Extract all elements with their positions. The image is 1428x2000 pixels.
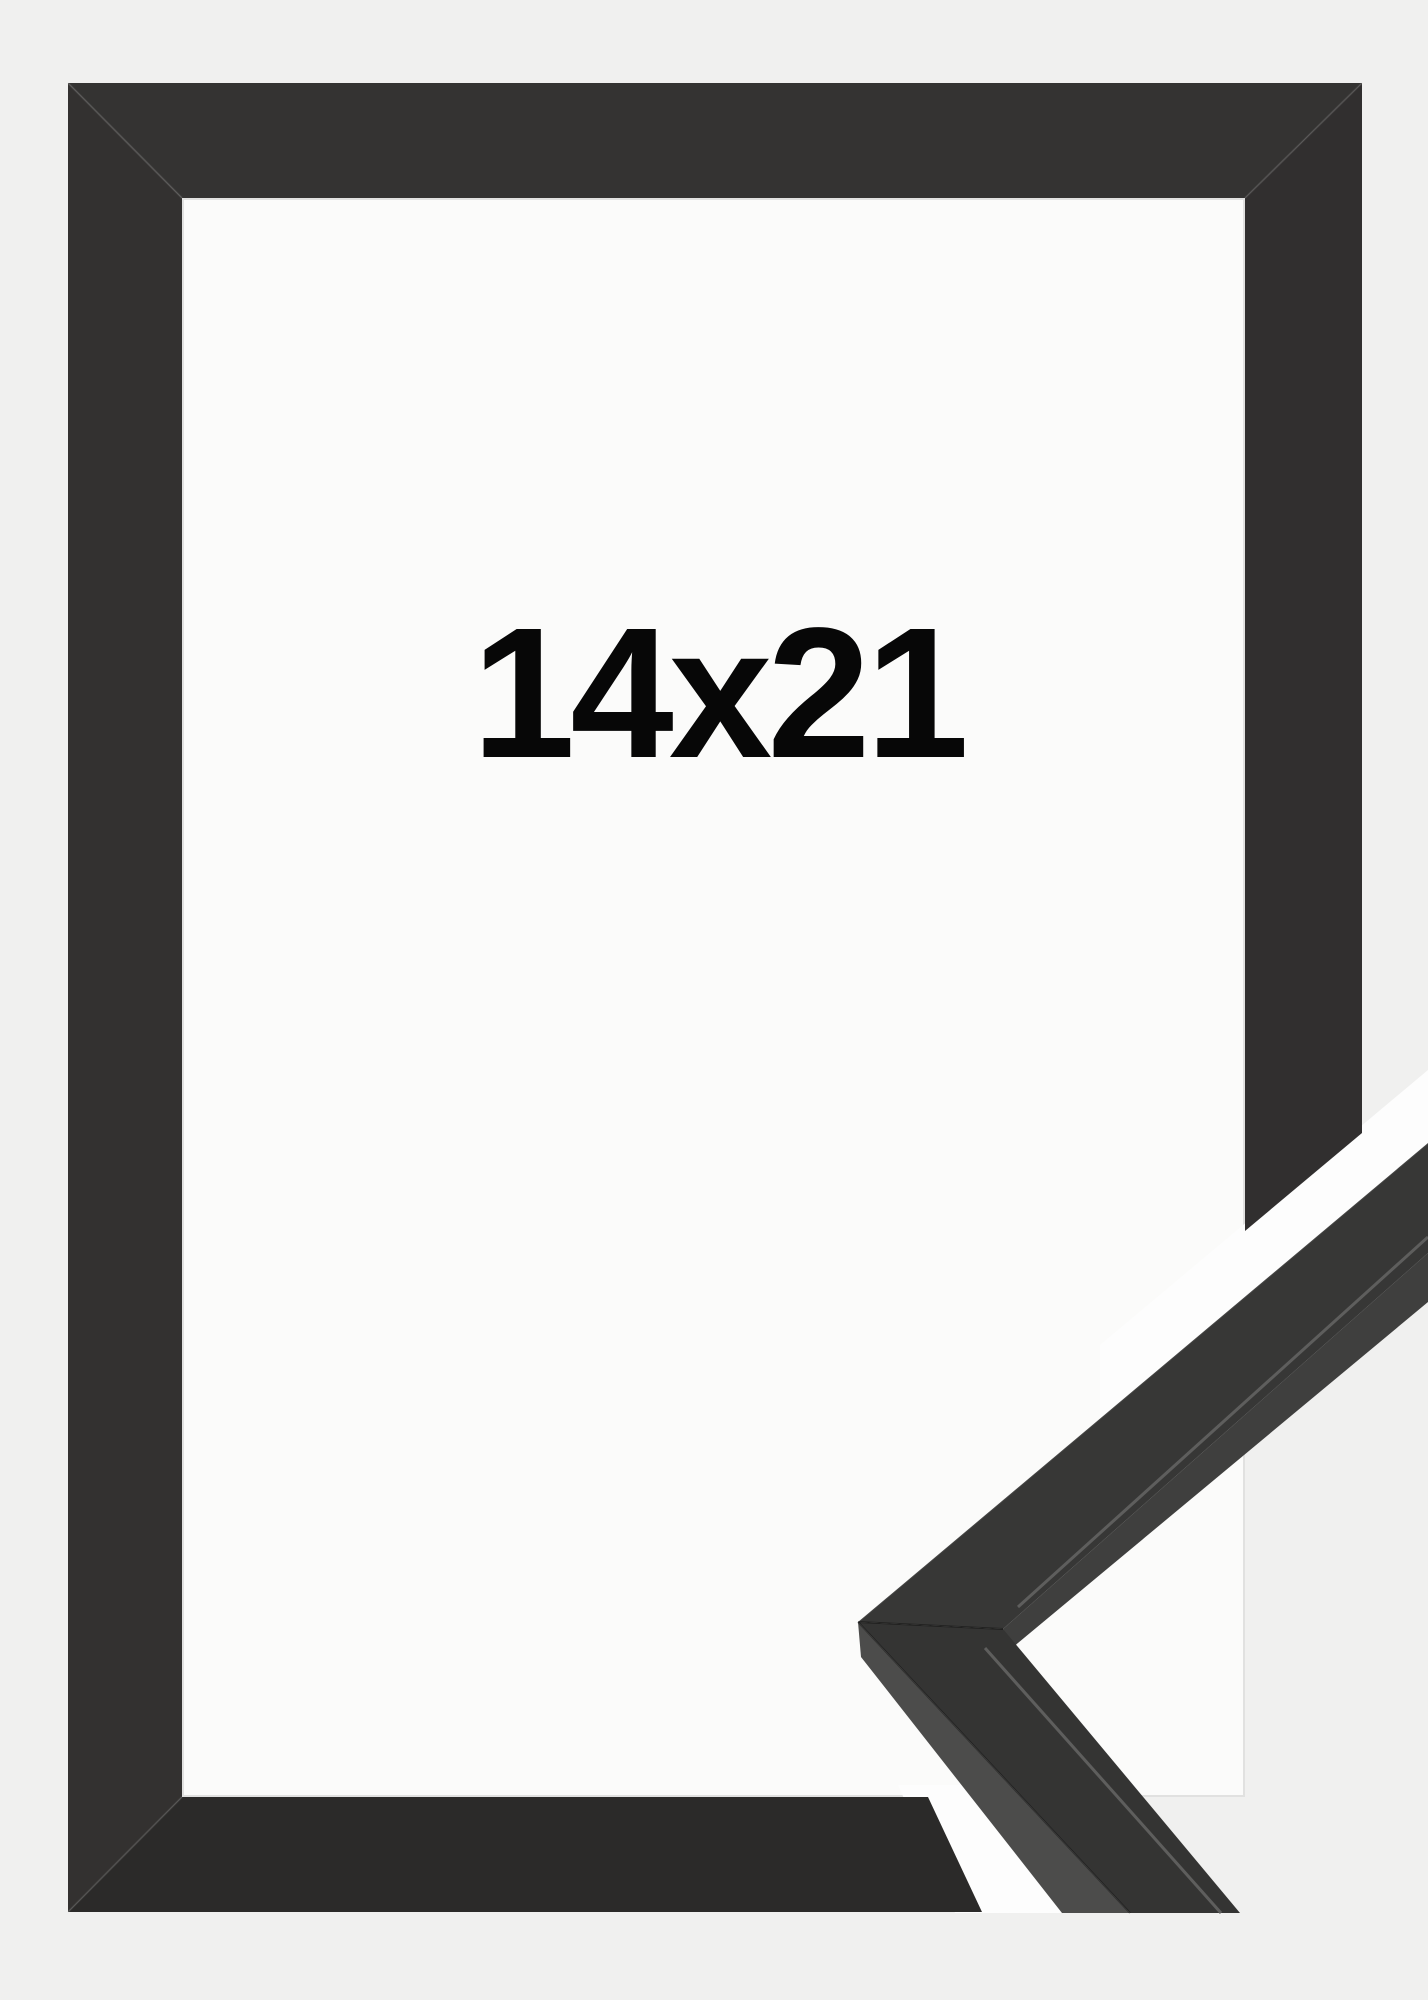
size-label: 14x21	[472, 601, 964, 787]
frame-product-canvas	[0, 0, 1428, 2000]
frame-top-band	[68, 83, 1362, 198]
frame-product-image: 14x21	[0, 0, 1428, 2000]
frame-bottom-band	[68, 1797, 982, 1912]
frame-right-band	[1245, 83, 1362, 1231]
frame-left-band	[68, 83, 182, 1912]
